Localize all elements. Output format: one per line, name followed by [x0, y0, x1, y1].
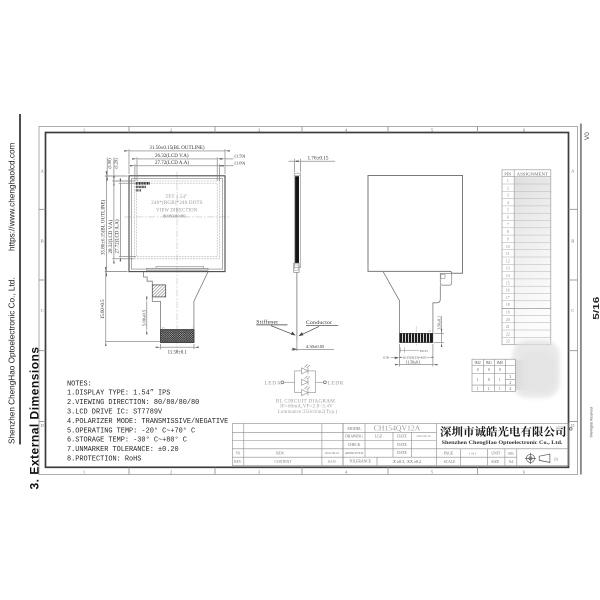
svg-text:2: 2	[170, 469, 173, 474]
svg-text:DATE: DATE	[328, 460, 337, 464]
svg-text:6: 6	[523, 469, 526, 474]
svg-text:APPROVED: APPROVED	[345, 451, 364, 455]
svg-text:ASSIGNMENT: ASSIGNMENT	[517, 171, 549, 176]
svg-text:Conductor: Conductor	[306, 320, 332, 326]
svg-text:4: 4	[507, 201, 509, 205]
svg-text:2.VIEWING DIRECTION: 80/80/80/: 2.VIEWING DIRECTION: 80/80/80/80	[67, 399, 199, 407]
svg-text:DRAWING: DRAWING	[345, 435, 363, 439]
svg-text:IM1: IM1	[486, 361, 492, 365]
svg-text:Shenzhen ChengHao Optoelectron: Shenzhen ChengHao Optoelectronic Co., Lt…	[442, 441, 564, 446]
svg-text:23: 23	[428, 329, 432, 333]
svg-text:4.30±0.05: 4.30±0.05	[306, 344, 325, 349]
svg-text:(1.29): (1.29)	[114, 158, 119, 169]
svg-text:19: 19	[506, 311, 510, 315]
svg-text:A: A	[571, 169, 575, 174]
svg-text:(0.35)X(23)=8.05: (0.35)X(23)=8.05	[403, 356, 427, 360]
svg-text:NEW: NEW	[276, 451, 285, 455]
svg-text:18: 18	[506, 303, 510, 307]
svg-text:1: 1	[499, 378, 501, 382]
svg-text:9: 9	[507, 238, 509, 242]
svg-text:20: 20	[506, 318, 510, 322]
svg-text:SCALE: SCALE	[444, 460, 456, 464]
svg-text:SIZE: SIZE	[491, 460, 500, 464]
svg-text:1.76±0.15: 1.76±0.15	[308, 155, 329, 161]
svg-text:DATE: DATE	[397, 435, 407, 439]
svg-text:11: 11	[506, 252, 510, 256]
svg-text:TOLERANCE: TOLERANCE	[349, 460, 372, 464]
svg-text:V0: V0	[236, 451, 241, 455]
svg-text:2022-06-16: 2022-06-16	[325, 451, 339, 455]
svg-text:0: 0	[488, 378, 490, 382]
svg-text:23: 23	[162, 326, 166, 330]
svg-text:1: 1	[83, 469, 86, 474]
svg-text:PIN: PIN	[504, 171, 511, 176]
svg-text:5.OPERATING TEMP: -20° C~+70°: 5.OPERATING TEMP: -20° C~+70° C	[67, 426, 195, 435]
svg-text:26.32(LCD V.A): 26.32(LCD V.A)	[155, 154, 189, 159]
svg-text:A4: A4	[508, 460, 513, 464]
svg-text:1: 1	[488, 387, 490, 391]
svg-text:8.PROTECTION: RoHS: 8.PROTECTION: RoHS	[67, 456, 141, 464]
svg-text:(1.59): (1.59)	[235, 154, 246, 159]
svg-text:V0: V0	[584, 132, 591, 140]
svg-text:D: D	[571, 423, 575, 428]
svg-text:(1.09): (1.09)	[235, 160, 246, 165]
svg-text:Luminance:350cd/m2(Typ.): Luminance:350cd/m2(Typ.)	[278, 410, 338, 415]
svg-text:TFT 1.54”: TFT 1.54”	[166, 195, 188, 200]
svg-text:IM0: IM0	[497, 361, 503, 365]
svg-text:11.50±0.1: 11.50±0.1	[406, 360, 421, 364]
svg-text:15.60+0.5: 15.60+0.5	[101, 299, 106, 319]
svg-text:4: 4	[509, 387, 511, 391]
svg-text:CONTENT: CONTENT	[275, 460, 293, 464]
svg-text:2022.06.16: 2022.06.16	[417, 434, 431, 438]
svg-text:1 of 1: 1 of 1	[468, 451, 476, 455]
svg-text:6.STORAGE TEMP: -30° C~+80° C: 6.STORAGE TEMP: -30° C~+80° C	[67, 436, 187, 445]
svg-text:3: 3	[507, 194, 509, 198]
svg-text:10: 10	[506, 245, 510, 249]
svg-text:14: 14	[506, 274, 510, 278]
svg-text:7: 7	[507, 223, 509, 227]
svg-text:LEDA: LEDA	[264, 381, 281, 387]
svg-text:7.UNMARKER TOLERANCE: ±0.20: 7.UNMARKER TOLERANCE: ±0.20	[67, 446, 179, 454]
svg-text:P0.35: P0.35	[420, 349, 428, 353]
svg-text:35.80±0.15(BL OUTLINE): 35.80±0.15(BL OUTLINE)	[101, 199, 106, 255]
svg-text:Stiffener: Stiffener	[256, 318, 278, 325]
svg-text:1: 1	[507, 179, 509, 183]
svg-text:13: 13	[506, 267, 510, 271]
svg-text:MODEL: MODEL	[347, 426, 362, 431]
svg-text:CHECK: CHECK	[348, 443, 361, 447]
svg-text:C: C	[41, 308, 44, 313]
svg-text:©All Rights Reserved: ©All Rights Reserved	[588, 407, 593, 438]
svg-text:3.50±0.1: 3.50±0.1	[437, 316, 441, 330]
svg-text:UNIT: UNIT	[491, 451, 501, 455]
svg-text:.X ±0.3, .XX ±0.2: .X ±0.3, .XX ±0.2	[392, 459, 421, 465]
svg-text:12: 12	[506, 259, 510, 263]
svg-text:17: 17	[506, 296, 510, 300]
svg-text:8: 8	[507, 230, 509, 234]
svg-text:1: 1	[477, 387, 479, 391]
svg-text:DATE: DATE	[397, 451, 407, 455]
svg-text:0: 0	[499, 368, 501, 372]
svg-text:5/16: 5/16	[592, 296, 600, 320]
svg-text:PAGE: PAGE	[444, 451, 454, 455]
svg-text:B: B	[41, 239, 44, 244]
svg-text:NOTES:: NOTES:	[67, 380, 92, 388]
svg-text:0: 0	[477, 368, 479, 372]
svg-text:0: 0	[488, 368, 490, 372]
svg-text:16: 16	[506, 289, 510, 293]
svg-text:1: 1	[401, 329, 403, 333]
svg-text:1: 1	[499, 387, 501, 391]
svg-text:2: 2	[509, 381, 511, 385]
svg-text:3: 3	[509, 375, 511, 379]
svg-text:LGZ: LGZ	[375, 435, 383, 439]
svg-text:1: 1	[477, 378, 479, 382]
svg-text:27.72(LCD A.A): 27.72(LCD A.A)	[116, 219, 121, 253]
svg-text:6: 6	[507, 216, 509, 220]
svg-text:5: 5	[507, 208, 509, 212]
svg-text:23: 23	[506, 340, 510, 344]
svg-text:2: 2	[507, 186, 509, 190]
svg-text:C: C	[571, 308, 574, 313]
svg-text:Shenzhen ChengHao Optoelectron: Shenzhen ChengHao Optoelectronic Co., Lt…	[8, 277, 17, 444]
svg-text:22: 22	[506, 332, 510, 336]
svg-text:1.DISPLAY TYPE: 1.54” IPS: 1.DISPLAY TYPE: 1.54” IPS	[67, 390, 170, 398]
svg-text:80/80/80/80: 80/80/80/80	[163, 214, 185, 219]
svg-text:DATE: DATE	[397, 443, 407, 447]
svg-text:28.32(LCD V.A): 28.32(LCD V.A)	[109, 220, 114, 254]
svg-text:(3): (3)	[554, 457, 559, 461]
svg-text:15: 15	[506, 281, 510, 285]
svg-text:https://www.chenghaolcd.com: https://www.chenghaolcd.com	[8, 143, 17, 251]
svg-text:0.50: 0.50	[383, 356, 389, 360]
svg-text:REV.: REV.	[234, 460, 242, 464]
svg-text:5: 5	[431, 469, 434, 474]
svg-text:4.POLARIZER MODE: TRANSMISSIVE: 4.POLARIZER MODE: TRANSMISSIVE/NEGATIVE	[67, 418, 228, 426]
svg-text:27.72(LCD A.A): 27.72(LCD A.A)	[155, 161, 189, 166]
svg-text:CH154QV12A: CH154QV12A	[374, 426, 421, 433]
svg-text:A: A	[41, 169, 45, 174]
svg-text:mm: mm	[508, 451, 514, 455]
svg-text:11.50±0.1: 11.50±0.1	[168, 350, 188, 355]
svg-text:4: 4	[345, 469, 348, 474]
svg-text:B: B	[571, 239, 574, 244]
svg-text:(1.90): (1.90)	[107, 158, 112, 169]
svg-text:BL CIRCUIT DIAGRAM: BL CIRCUIT DIAGRAM	[276, 398, 335, 404]
svg-text:21: 21	[506, 325, 510, 329]
svg-text:LEDK: LEDK	[327, 381, 344, 387]
svg-text:240*(RGB)*240 DOTS: 240*(RGB)*240 DOTS	[151, 201, 203, 206]
svg-text:IF=60mA,VF=2.8~3.4V: IF=60mA,VF=2.8~3.4V	[280, 405, 333, 410]
svg-text:D: D	[41, 423, 45, 428]
svg-text:5.00±0.5: 5.00±0.5	[141, 309, 146, 326]
svg-text:31.50±0.15(BL OUTLINE): 31.50±0.15(BL OUTLINE)	[149, 146, 205, 151]
svg-text:3: 3	[258, 469, 261, 474]
svg-text:IM2: IM2	[474, 361, 480, 365]
svg-text:3.LCD DRIVE IC: ST7789V: 3.LCD DRIVE IC: ST7789V	[67, 409, 163, 417]
